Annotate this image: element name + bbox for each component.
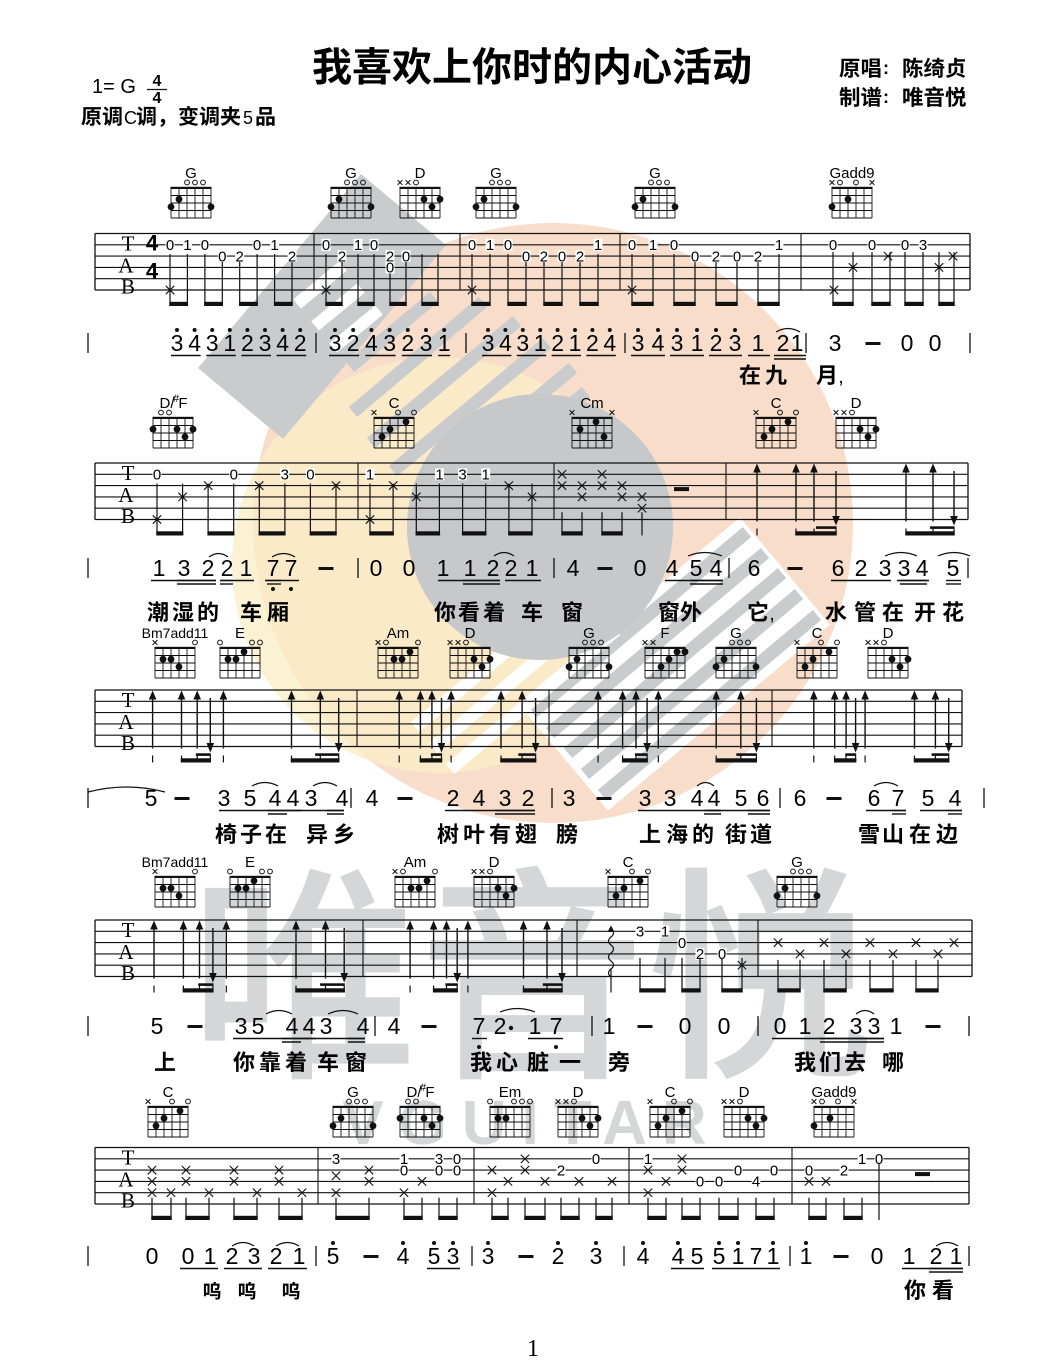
svg-text:4: 4 (752, 1174, 760, 1191)
svg-text:0: 0 (402, 248, 410, 265)
svg-text:3: 3 (305, 785, 318, 811)
svg-text:2: 2 (823, 1013, 836, 1039)
svg-text:3: 3 (499, 785, 512, 811)
svg-text:2: 2 (401, 330, 414, 356)
svg-text:0: 0 (829, 237, 837, 254)
svg-text:1: 1 (366, 467, 374, 484)
svg-text:2: 2 (712, 248, 720, 265)
svg-text:0: 0 (253, 237, 261, 254)
svg-text:0: 0 (182, 1243, 195, 1269)
svg-text:B: B (121, 961, 135, 985)
svg-text:3: 3 (482, 330, 495, 356)
svg-text:2: 2 (522, 785, 535, 811)
svg-text:3: 3 (248, 1243, 261, 1269)
svg-text:3: 3 (868, 1013, 881, 1039)
svg-text:Bm7add11: Bm7add11 (142, 854, 209, 870)
svg-text:1: 1 (223, 330, 236, 356)
svg-text:Bm7add11: Bm7add11 (142, 625, 209, 641)
svg-text:1: 1 (603, 1013, 616, 1039)
svg-text:2: 2 (576, 248, 584, 265)
svg-text:G: G (345, 165, 357, 182)
svg-text:1: 1 (437, 555, 450, 581)
svg-text:C: C (389, 395, 400, 412)
svg-text:4: 4 (153, 73, 162, 90)
svg-text:1: 1 (293, 1243, 306, 1269)
svg-text:3: 3 (281, 467, 289, 484)
svg-text:T: T (122, 688, 135, 712)
svg-text:4: 4 (366, 785, 379, 811)
svg-text:0: 0 (691, 248, 699, 265)
svg-text:2: 2 (855, 555, 868, 581)
svg-text:4: 4 (146, 231, 159, 256)
svg-text:0: 0 (322, 237, 330, 254)
svg-text:2: 2 (754, 248, 762, 265)
svg-text:1: 1 (438, 330, 451, 356)
svg-text:5: 5 (243, 108, 253, 128)
svg-text:7: 7 (750, 1243, 763, 1269)
svg-text:4: 4 (603, 330, 616, 356)
svg-text:,: , (838, 366, 844, 388)
svg-text:G: G (490, 165, 502, 182)
svg-text:3: 3 (829, 330, 842, 356)
svg-text:1: 1 (752, 330, 765, 356)
svg-text:2: 2 (226, 1243, 239, 1269)
svg-text:1: 1 (903, 1243, 916, 1269)
svg-text:6: 6 (832, 555, 845, 581)
svg-text:3: 3 (482, 1243, 495, 1269)
svg-text:C: C (163, 1084, 174, 1101)
svg-text:0: 0 (306, 467, 314, 484)
svg-text:T: T (122, 1146, 135, 1170)
svg-text:D: D (489, 854, 500, 871)
svg-text:1: 1 (775, 237, 783, 254)
svg-text:3: 3 (563, 785, 576, 811)
svg-text:3: 3 (636, 924, 644, 941)
svg-text:4: 4 (949, 785, 962, 811)
svg-text:E: E (245, 854, 255, 871)
svg-text:0: 0 (370, 237, 378, 254)
svg-text:4: 4 (153, 90, 162, 107)
svg-text:1: 1 (594, 237, 602, 254)
svg-text:0: 0 (718, 1013, 731, 1039)
svg-text:1: 1 (799, 1013, 812, 1039)
svg-text:Em: Em (499, 1084, 522, 1101)
svg-text:3: 3 (898, 555, 911, 581)
svg-text:0: 0 (734, 1162, 742, 1179)
svg-text:0: 0 (678, 935, 686, 952)
svg-text:0: 0 (504, 237, 512, 254)
svg-text:G: G (730, 625, 742, 642)
svg-text:5: 5 (922, 785, 935, 811)
svg-text:B: B (121, 504, 135, 528)
svg-text:F: F (660, 625, 669, 642)
svg-text:5: 5 (244, 785, 257, 811)
svg-text:6: 6 (757, 785, 770, 811)
svg-text:,: , (769, 603, 775, 625)
svg-text:1: 1 (204, 1243, 217, 1269)
svg-text:C: C (124, 108, 137, 128)
svg-text:4: 4 (652, 330, 665, 356)
svg-text:0: 0 (403, 555, 416, 581)
svg-text:B: B (121, 1189, 135, 1213)
svg-text:G: G (649, 165, 661, 182)
svg-text:1: 1 (153, 555, 166, 581)
svg-text:1: 1 (732, 1243, 745, 1269)
svg-text:6: 6 (748, 555, 761, 581)
svg-text:0: 0 (901, 237, 909, 254)
svg-text:4: 4 (388, 1013, 401, 1039)
svg-text:5: 5 (252, 1013, 265, 1039)
svg-text:2: 2 (540, 248, 548, 265)
svg-text:2: 2 (840, 1162, 848, 1179)
svg-text:3: 3 (420, 330, 433, 356)
svg-text:1: 1 (858, 1151, 866, 1168)
svg-text:2: 2 (487, 555, 500, 581)
svg-text:3: 3 (590, 1243, 603, 1269)
svg-text:5: 5 (691, 1243, 704, 1269)
svg-text:G: G (583, 625, 595, 642)
svg-text:1: 1 (529, 1013, 542, 1039)
svg-text:4: 4 (336, 785, 349, 811)
svg-text:C: C (665, 1084, 676, 1101)
svg-text:2: 2 (552, 1243, 565, 1269)
svg-text:6: 6 (868, 785, 881, 811)
svg-text:1: 1 (183, 237, 191, 254)
svg-text:4: 4 (286, 1013, 299, 1039)
svg-text:4: 4 (276, 330, 289, 356)
svg-text:2: 2 (557, 1162, 565, 1179)
svg-text:0: 0 (146, 1243, 159, 1269)
svg-text:4: 4 (916, 555, 929, 581)
svg-text:4: 4 (303, 1013, 316, 1039)
svg-text:0: 0 (386, 260, 394, 277)
svg-text:2: 2 (288, 248, 296, 265)
svg-text:3: 3 (171, 330, 184, 356)
svg-text:2: 2 (294, 330, 307, 356)
svg-text:4: 4 (357, 1013, 370, 1039)
svg-text:3: 3 (329, 330, 342, 356)
svg-text:3: 3 (516, 330, 529, 356)
svg-text:B: B (121, 731, 135, 755)
svg-text:0: 0 (634, 555, 647, 581)
svg-text:0: 0 (166, 237, 174, 254)
svg-text:0: 0 (435, 1162, 443, 1179)
svg-text:4: 4 (691, 785, 704, 811)
svg-text:Am: Am (404, 854, 427, 871)
svg-text:3: 3 (383, 330, 396, 356)
svg-text:1: 1 (270, 237, 278, 254)
svg-text:4: 4 (499, 330, 512, 356)
svg-text:1: 1 (767, 1243, 780, 1269)
svg-text:0: 0 (733, 248, 741, 265)
svg-text:3: 3 (320, 1013, 333, 1039)
svg-text:0: 0 (400, 1162, 408, 1179)
svg-text:4: 4 (287, 785, 300, 811)
svg-text:3: 3 (850, 1013, 863, 1039)
svg-text:4: 4 (188, 330, 201, 356)
svg-text:4: 4 (666, 555, 679, 581)
svg-text:5: 5 (735, 785, 748, 811)
svg-text:Cm: Cm (580, 395, 603, 412)
svg-text:1: 1 (649, 237, 657, 254)
svg-text:2: 2 (930, 1243, 943, 1269)
svg-text:0: 0 (558, 248, 566, 265)
svg-text:0: 0 (868, 237, 876, 254)
svg-text:4: 4 (397, 1243, 410, 1269)
svg-text::: : (883, 87, 889, 107)
svg-text:3: 3 (218, 785, 231, 811)
svg-text:3: 3 (729, 330, 742, 356)
svg-text:2: 2 (505, 555, 518, 581)
svg-text:0: 0 (871, 1243, 884, 1269)
svg-text:C: C (812, 625, 823, 642)
svg-text:1: 1 (691, 330, 704, 356)
svg-text:2: 2 (270, 1243, 283, 1269)
svg-text:4: 4 (637, 1243, 650, 1269)
svg-text:4: 4 (708, 785, 721, 811)
svg-text:4: 4 (672, 1243, 685, 1269)
svg-text:2: 2 (494, 1013, 507, 1039)
svg-text:0: 0 (696, 1174, 704, 1191)
svg-text:0: 0 (679, 1013, 692, 1039)
svg-text:0: 0 (218, 248, 226, 265)
svg-text:0: 0 (628, 237, 636, 254)
svg-text:4: 4 (710, 555, 723, 581)
svg-text:0: 0 (805, 1162, 813, 1179)
svg-text:C: C (623, 854, 634, 871)
svg-text:5: 5 (713, 1243, 726, 1269)
svg-text:3: 3 (879, 555, 892, 581)
svg-text:G: G (791, 854, 803, 871)
svg-text:2: 2 (777, 330, 790, 356)
svg-text:1: 1 (240, 555, 253, 581)
svg-text:Gadd9: Gadd9 (829, 165, 874, 182)
svg-text:4: 4 (365, 330, 378, 356)
svg-text:1: 1 (534, 330, 547, 356)
svg-text:1: 1 (890, 1013, 903, 1039)
svg-text:3: 3 (632, 330, 645, 356)
svg-text:2: 2 (710, 330, 723, 356)
svg-text:2: 2 (338, 248, 346, 265)
svg-text:0: 0 (929, 330, 942, 356)
svg-text:1: 1 (527, 1336, 539, 1362)
svg-text:7: 7 (892, 785, 905, 811)
svg-text:4: 4 (567, 555, 580, 581)
svg-text:1: 1 (486, 237, 494, 254)
svg-text:C: C (771, 395, 782, 412)
svg-text:3: 3 (447, 1243, 460, 1269)
svg-text:2: 2 (347, 330, 360, 356)
svg-text:5: 5 (947, 555, 960, 581)
svg-text:1: 1 (569, 330, 582, 356)
svg-text:F: F (178, 395, 187, 412)
svg-text:2: 2 (221, 555, 234, 581)
svg-text:Gadd9: Gadd9 (811, 1084, 856, 1101)
svg-text:2: 2 (586, 330, 599, 356)
svg-text:1: 1 (526, 555, 539, 581)
svg-text:3: 3 (235, 1013, 248, 1039)
svg-text:0: 0 (715, 1174, 723, 1191)
svg-text:3: 3 (178, 555, 191, 581)
svg-text:6: 6 (794, 785, 807, 811)
svg-text:G: G (347, 1084, 359, 1101)
svg-text:2: 2 (202, 555, 215, 581)
svg-text:0: 0 (453, 1162, 461, 1179)
svg-text:0: 0 (901, 330, 914, 356)
svg-text:4: 4 (146, 259, 159, 284)
svg-text:3: 3 (671, 330, 684, 356)
svg-text:1: 1 (950, 1243, 963, 1269)
svg-text:1: 1 (661, 924, 669, 941)
svg-text:0: 0 (522, 248, 530, 265)
svg-text:E: E (235, 625, 245, 642)
svg-text:1: 1 (464, 555, 477, 581)
svg-text:2: 2 (551, 330, 564, 356)
svg-text:F: F (425, 1084, 434, 1101)
svg-text:1: 1 (644, 1151, 652, 1168)
svg-text:3: 3 (919, 237, 927, 254)
svg-text:1: 1 (791, 330, 804, 356)
svg-text:7: 7 (550, 1013, 563, 1039)
svg-text:4: 4 (269, 785, 282, 811)
svg-text:1= G: 1= G (92, 76, 136, 98)
svg-text:T: T (122, 918, 135, 942)
svg-text:2: 2 (447, 785, 460, 811)
svg-text:5: 5 (145, 785, 158, 811)
svg-text:5: 5 (428, 1243, 441, 1269)
svg-text:1: 1 (435, 467, 443, 484)
svg-text:0: 0 (153, 467, 161, 484)
svg-text:2: 2 (236, 248, 244, 265)
svg-text:4: 4 (473, 785, 486, 811)
svg-text:0: 0 (230, 467, 238, 484)
svg-text:1: 1 (800, 1243, 813, 1269)
svg-text:D: D (465, 625, 476, 642)
svg-text:0: 0 (774, 1013, 787, 1039)
svg-text:3: 3 (259, 330, 272, 356)
svg-text:T: T (122, 232, 135, 256)
svg-text:0: 0 (670, 237, 678, 254)
svg-text:1: 1 (354, 237, 362, 254)
svg-text:Am: Am (387, 625, 410, 642)
svg-text:3: 3 (206, 330, 219, 356)
svg-text:0: 0 (468, 237, 476, 254)
svg-text:5: 5 (151, 1013, 164, 1039)
svg-text:D: D (739, 1084, 750, 1101)
svg-text:0: 0 (592, 1151, 600, 1168)
svg-text:7: 7 (285, 555, 298, 581)
svg-text:3: 3 (639, 785, 652, 811)
svg-text:D: D (415, 165, 426, 182)
svg-text:5: 5 (690, 555, 703, 581)
svg-text:D: D (851, 395, 862, 412)
svg-text:3: 3 (332, 1151, 340, 1168)
svg-text::: : (883, 58, 889, 78)
svg-text:T: T (122, 461, 135, 485)
svg-text:7: 7 (473, 1013, 486, 1039)
svg-text:D: D (883, 625, 894, 642)
svg-text:3: 3 (458, 467, 466, 484)
svg-text:0: 0 (201, 237, 209, 254)
svg-text:G: G (185, 165, 197, 182)
svg-text:1: 1 (482, 467, 490, 484)
svg-text:0: 0 (770, 1162, 778, 1179)
svg-text:5: 5 (327, 1243, 340, 1269)
svg-text:7: 7 (267, 555, 280, 581)
svg-text:B: B (121, 275, 135, 299)
svg-text:D: D (573, 1084, 584, 1101)
svg-text:2: 2 (241, 330, 254, 356)
svg-text:0: 0 (370, 555, 383, 581)
svg-text:3: 3 (664, 785, 677, 811)
